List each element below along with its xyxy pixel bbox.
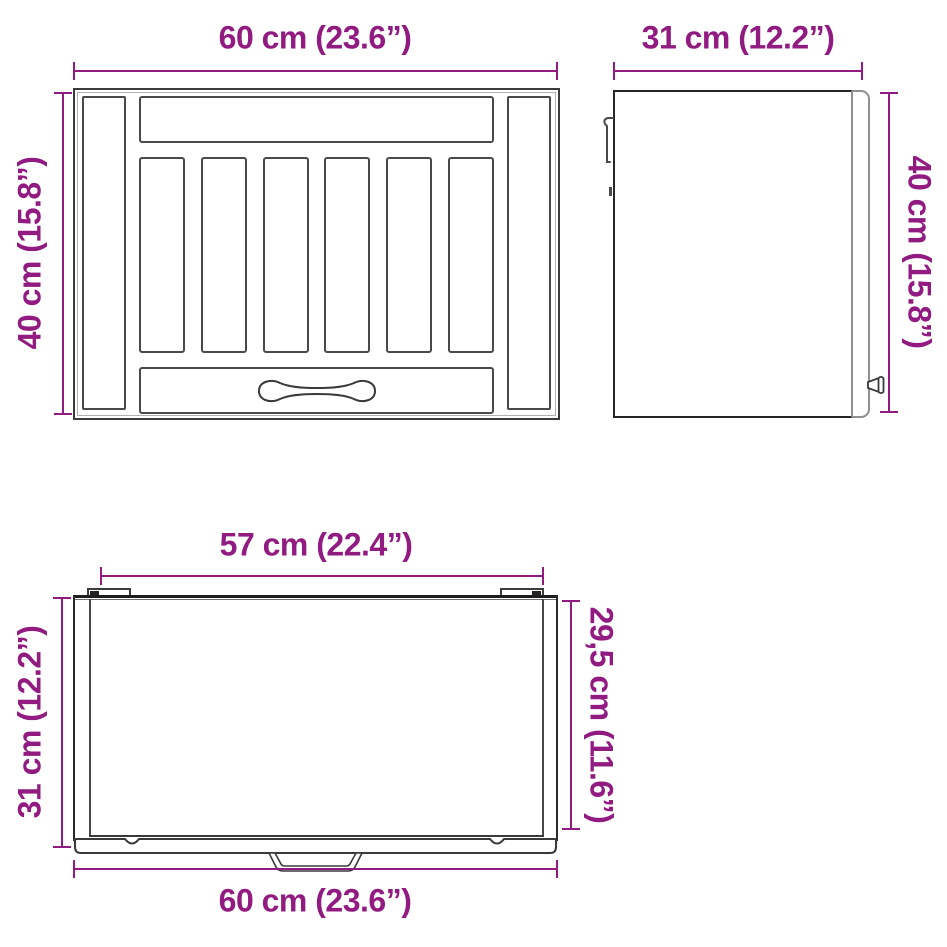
dim-line-top-depth: [61, 597, 63, 848]
side-view-drawing: [613, 90, 854, 418]
front-slat: [263, 157, 309, 353]
side-depth-label: 31 cm (12.2”): [642, 20, 835, 57]
side-height-label: 40 cm (15.8”): [901, 156, 938, 349]
front-slat-group: [139, 157, 494, 353]
top-view-left-inner-wall: [89, 599, 91, 836]
top-view-right-inner-wall: [542, 599, 544, 836]
top-view-back-edge: [73, 595, 558, 600]
top-view-front-inner-edge: [89, 835, 544, 837]
top-inner-depth-label: 29,5 cm (11.6”): [583, 607, 620, 824]
top-view-door-front-edge: [73, 838, 558, 878]
front-slat: [386, 157, 432, 353]
top-width-label: 60 cm (23.6”): [219, 883, 412, 920]
front-slat: [324, 157, 370, 353]
dim-line-side-depth: [613, 70, 863, 72]
front-width-label: 60 cm (23.6”): [219, 20, 412, 57]
top-depth-label: 31 cm (12.2”): [12, 626, 49, 819]
dim-line-front-width: [73, 70, 558, 72]
front-bottom-rail-panel: [139, 367, 494, 414]
top-view-drawing: [73, 588, 558, 888]
dim-line-top-inner-depth: [570, 600, 572, 830]
front-slat: [448, 157, 494, 353]
side-knob-icon: [866, 376, 886, 396]
front-top-rail-panel: [139, 96, 494, 143]
dim-line-front-height: [62, 92, 64, 415]
side-view-door-edge: [851, 90, 870, 418]
dim-line-side-height: [888, 92, 890, 413]
cabinet-dimension-diagram: 60 cm (23.6”) 40 cm (15.8”) 31 cm (12.2”…: [0, 0, 947, 947]
door-handle-icon: [256, 378, 378, 404]
top-view-left-outer-wall: [73, 595, 75, 841]
side-hinge-bracket-icon: [601, 116, 615, 166]
dim-line-top-width: [73, 868, 558, 870]
front-view-drawing: [73, 88, 560, 420]
top-inner-width-label: 57 cm (22.4”): [220, 527, 413, 564]
front-height-label: 40 cm (15.8”): [12, 157, 49, 350]
side-hinge-pin: [609, 187, 612, 196]
front-slat: [139, 157, 185, 353]
dim-line-top-inner-width: [100, 575, 544, 577]
front-right-stile: [507, 96, 551, 410]
top-view-right-outer-wall: [556, 595, 558, 841]
front-left-stile: [82, 96, 126, 410]
front-slat: [201, 157, 247, 353]
